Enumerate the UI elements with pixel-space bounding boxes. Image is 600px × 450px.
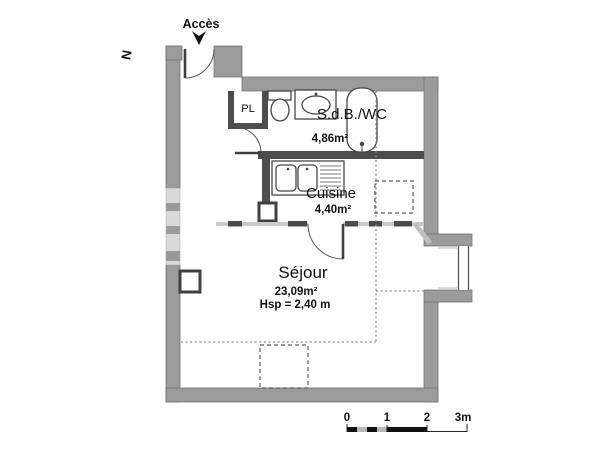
partition-dash (288, 221, 307, 227)
kitchen-living-partition (216, 221, 430, 243)
entry-jamb-block (214, 46, 242, 77)
bay-top-wall (424, 234, 472, 246)
bottom-wall (166, 388, 438, 402)
access-arrow-icon (192, 31, 206, 45)
kitchen-sink-icon (276, 165, 296, 191)
washbasin-tap-icon (315, 93, 318, 96)
scale-segment (377, 427, 387, 432)
scale-segment (387, 427, 427, 432)
kitchen-column-fixture (259, 203, 276, 221)
closet-right-wall (262, 91, 268, 123)
partition-dash (394, 221, 412, 227)
top-wall (242, 77, 438, 91)
left-wall-lower (166, 265, 180, 402)
living-door-swing (308, 224, 343, 259)
living-dashed-element (260, 345, 308, 388)
entry-door-swing (185, 49, 214, 78)
entrance-annotation: Accès (183, 17, 220, 45)
scale-bar: 0 1 2 3m (344, 412, 472, 432)
kitchen-dashed-appliance (375, 181, 413, 213)
bathroom-area: 4,86m² (312, 133, 349, 145)
left-window-sash (166, 203, 180, 211)
left-window-sash (166, 226, 180, 234)
scale-segment (357, 427, 367, 432)
bay-window (438, 246, 470, 290)
bathroom-door-swing (235, 127, 261, 153)
sink-tap-icon (287, 168, 290, 171)
scale-segment (347, 427, 357, 432)
bay-bottom-wall (424, 290, 472, 302)
kitchen-label: Cuisine (306, 185, 356, 202)
partition-dash (228, 221, 242, 227)
toilet-icon (271, 99, 289, 121)
scale-tick-label: 0 (344, 412, 350, 424)
bathtub-drain-icon (360, 142, 364, 146)
living-label: Séjour (278, 263, 327, 282)
bathroom-kitchen-wall (258, 151, 424, 159)
scale-tick-label: 1 (384, 412, 391, 424)
sink-tap-icon (306, 168, 309, 171)
partition-dash (345, 221, 358, 227)
floor-plan: Accès N PL S.d.B./WC 4,86m² Cuisine 4,40… (0, 0, 600, 450)
kitchen-left-wall (262, 159, 270, 204)
closet-label: PL (241, 103, 254, 115)
access-label: Accès (183, 17, 220, 31)
radiator-icon (180, 271, 200, 292)
living-area: 23,09m² (275, 286, 318, 298)
north-indicator: N (118, 49, 134, 61)
scale-tick-label: 2 (424, 412, 430, 424)
scale-tick-label: 3m (455, 412, 472, 424)
left-wall-upper (166, 46, 180, 188)
bathroom-label: S.d.B./WC (317, 106, 387, 123)
closet-bottom-wall (228, 123, 268, 129)
right-wall-upper (424, 77, 438, 234)
top-wall-left (166, 46, 182, 60)
left-window-sash (166, 251, 180, 261)
scale-segment (367, 427, 377, 432)
right-wall-lower (424, 302, 438, 402)
living-ceiling-height: Hsp = 2,40 m (260, 299, 331, 311)
kitchen-area: 4,40m² (315, 204, 352, 216)
